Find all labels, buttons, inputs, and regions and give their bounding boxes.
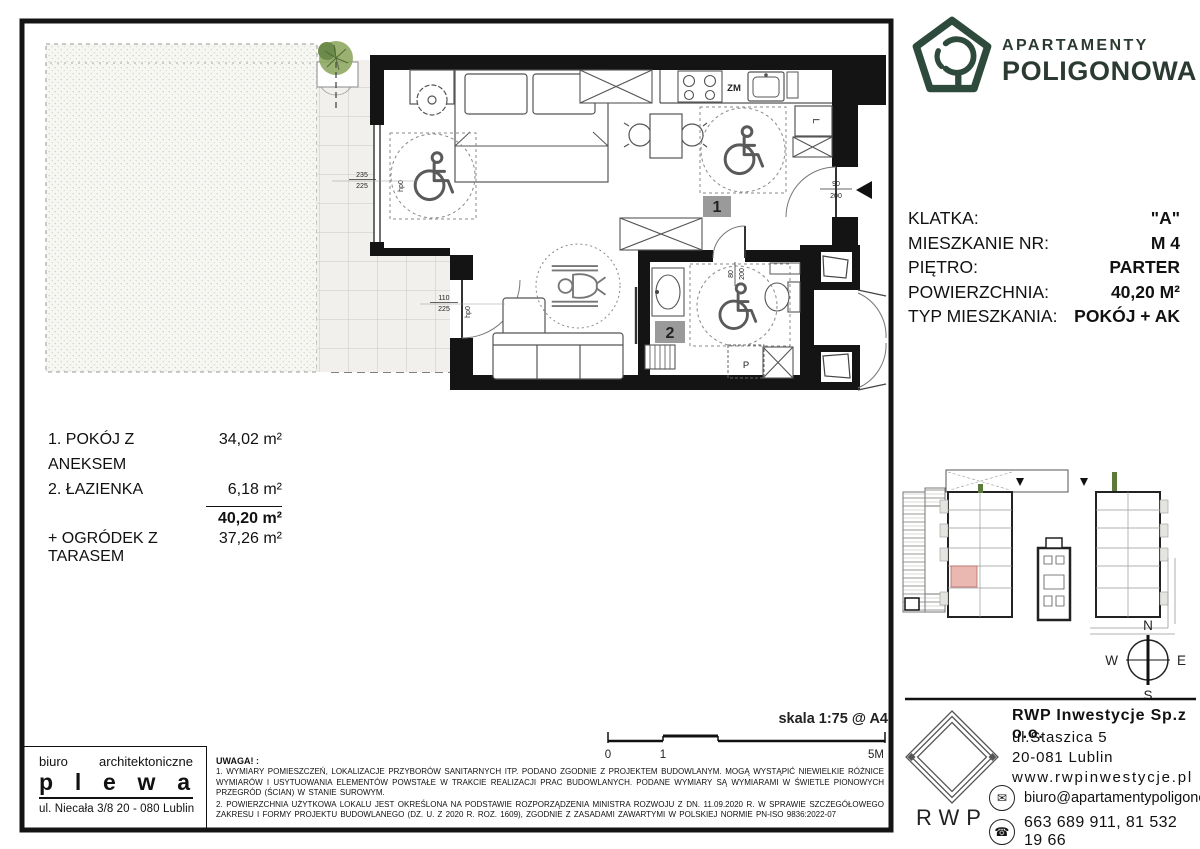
compass-e: E bbox=[1177, 653, 1186, 668]
info-row-mieszkanie: MIESZKANIE NR: M 4 bbox=[908, 231, 1180, 256]
site-plan bbox=[903, 470, 1175, 634]
email-icon: ✉ bbox=[989, 785, 1015, 811]
scale-bar: skala 1:75 @ A4 0 1 5M bbox=[605, 711, 888, 761]
brand-pentagon-icon bbox=[910, 14, 994, 98]
svg-text:L: L bbox=[811, 118, 821, 123]
info-label: MIESZKANIE NR: bbox=[908, 231, 1049, 256]
developer-email[interactable]: biuro@apartamentypoligonowa.pl bbox=[1024, 790, 1200, 806]
info-row-pietro: PIĘTRO: PARTER bbox=[908, 255, 1180, 280]
svg-text:P: P bbox=[743, 360, 749, 371]
architect-box: biuro architektoniczne p l e w a ul. Nie… bbox=[24, 746, 207, 829]
room-name: 2. ŁAZIENKA bbox=[48, 477, 208, 502]
garden-area-row: + OGRÓDEK Z TARASEM 37,26 m² bbox=[48, 530, 282, 566]
info-value: PARTER bbox=[1109, 255, 1180, 280]
svg-text:200: 200 bbox=[830, 193, 842, 200]
svg-text:200: 200 bbox=[739, 268, 746, 280]
info-value: "A" bbox=[1151, 206, 1180, 231]
notes-block: UWAGA! : 1. WYMIARY POMIESZCZEŃ, LOKALIZ… bbox=[216, 756, 884, 821]
rwp-logo-icon bbox=[906, 711, 998, 803]
brand-wordmark: APARTAMENTY POLIGONOWA bbox=[1002, 37, 1197, 87]
info-label: KLATKA: bbox=[908, 206, 979, 231]
total-divider bbox=[206, 506, 282, 507]
svg-text:110: 110 bbox=[438, 295, 449, 302]
notes-paragraph-2: 2. POWIERZCHNIA UŻYTKOWA LOKALU JEST OKR… bbox=[216, 800, 884, 821]
apartment-info-table: KLATKA: "A" MIESZKANIE NR: M 4 PIĘTRO: P… bbox=[908, 206, 1180, 329]
info-row-typ: TYP MIESZKANIA: POKÓJ + AK bbox=[908, 304, 1180, 329]
compass-w: W bbox=[1105, 653, 1118, 668]
compass-n: N bbox=[1143, 618, 1153, 633]
total-area: 40,20 m² bbox=[206, 510, 282, 528]
room-area-list: 1. POKÓJ Z ANEKSEM 34,02 m² 2. ŁAZIENKA … bbox=[48, 427, 282, 528]
svg-text:235: 235 bbox=[356, 172, 368, 179]
room1-badge: 1 bbox=[713, 199, 722, 216]
room-row-2: 2. ŁAZIENKA 6,18 m² bbox=[48, 477, 282, 502]
info-label: TYP MIESZKANIA: bbox=[908, 304, 1057, 329]
developer-phones[interactable]: 663 689 911, 81 532 19 66 bbox=[1024, 814, 1200, 849]
architect-address: ul. Niecała 3/8 20 - 080 Lublin bbox=[39, 803, 193, 815]
info-label: POWIERZCHNIA: bbox=[908, 280, 1049, 305]
svg-text:ZM: ZM bbox=[727, 83, 741, 94]
floor-plan-sheet: 1 2 ZM L P hp0 hp0 235 225 110 225 90 20… bbox=[0, 0, 1200, 849]
room-area: 34,02 m² bbox=[208, 427, 282, 477]
info-value: M 4 bbox=[1151, 231, 1180, 256]
brand-line2: POLIGONOWA bbox=[1002, 56, 1197, 87]
garden-area-value: 37,26 m² bbox=[208, 530, 282, 566]
notes-paragraph-1: 1. WYMIARY POMIESZCZEŃ, LOKALIZACJE PRZY… bbox=[216, 767, 884, 799]
notes-header: UWAGA! : bbox=[216, 756, 884, 766]
room2-badge: 2 bbox=[666, 325, 675, 342]
info-row-klatka: KLATKA: "A" bbox=[908, 206, 1180, 231]
compass: N S W E bbox=[1105, 618, 1186, 703]
garden-label: + OGRÓDEK Z TARASEM bbox=[48, 530, 208, 566]
info-row-powierzchnia: POWIERZCHNIA: 40,20 M² bbox=[908, 280, 1180, 305]
phone-icon: ☎ bbox=[989, 819, 1015, 845]
info-value: POKÓJ + AK bbox=[1074, 304, 1180, 329]
developer-website[interactable]: www.rwpinwestycje.pl bbox=[1012, 769, 1193, 786]
developer-phone-row: ☎ 663 689 911, 81 532 19 66 bbox=[989, 814, 1200, 849]
developer-address2: 20-081 Lublin bbox=[1012, 749, 1113, 766]
architect-name: p l e w a bbox=[39, 769, 193, 799]
brand-line1: APARTAMENTY bbox=[1002, 37, 1197, 55]
svg-text:hp0: hp0 bbox=[465, 306, 472, 318]
svg-text:80: 80 bbox=[728, 270, 735, 278]
room-area: 6,18 m² bbox=[208, 477, 282, 502]
room-name: 1. POKÓJ Z ANEKSEM bbox=[48, 427, 208, 477]
developer-address1: ul.Staszica 5 bbox=[1012, 729, 1107, 746]
svg-text:225: 225 bbox=[438, 306, 450, 313]
rwp-logo-text: RWP bbox=[916, 805, 988, 830]
compass-s: S bbox=[1143, 688, 1152, 703]
total-row: 40,20 m² bbox=[48, 510, 282, 528]
developer-email-row: ✉ biuro@apartamentypoligonowa.pl bbox=[989, 785, 1200, 811]
svg-text:hp0: hp0 bbox=[398, 180, 405, 192]
svg-text:90: 90 bbox=[832, 181, 840, 188]
info-value: 40,20 M² bbox=[1111, 280, 1180, 305]
scale-title: skala 1:75 @ A4 bbox=[778, 711, 888, 727]
info-label: PIĘTRO: bbox=[908, 255, 978, 280]
svg-text:225: 225 bbox=[356, 183, 368, 190]
room-row-1: 1. POKÓJ Z ANEKSEM 34,02 m² bbox=[48, 427, 282, 477]
architect-type: biuro architektoniczne bbox=[39, 754, 193, 769]
